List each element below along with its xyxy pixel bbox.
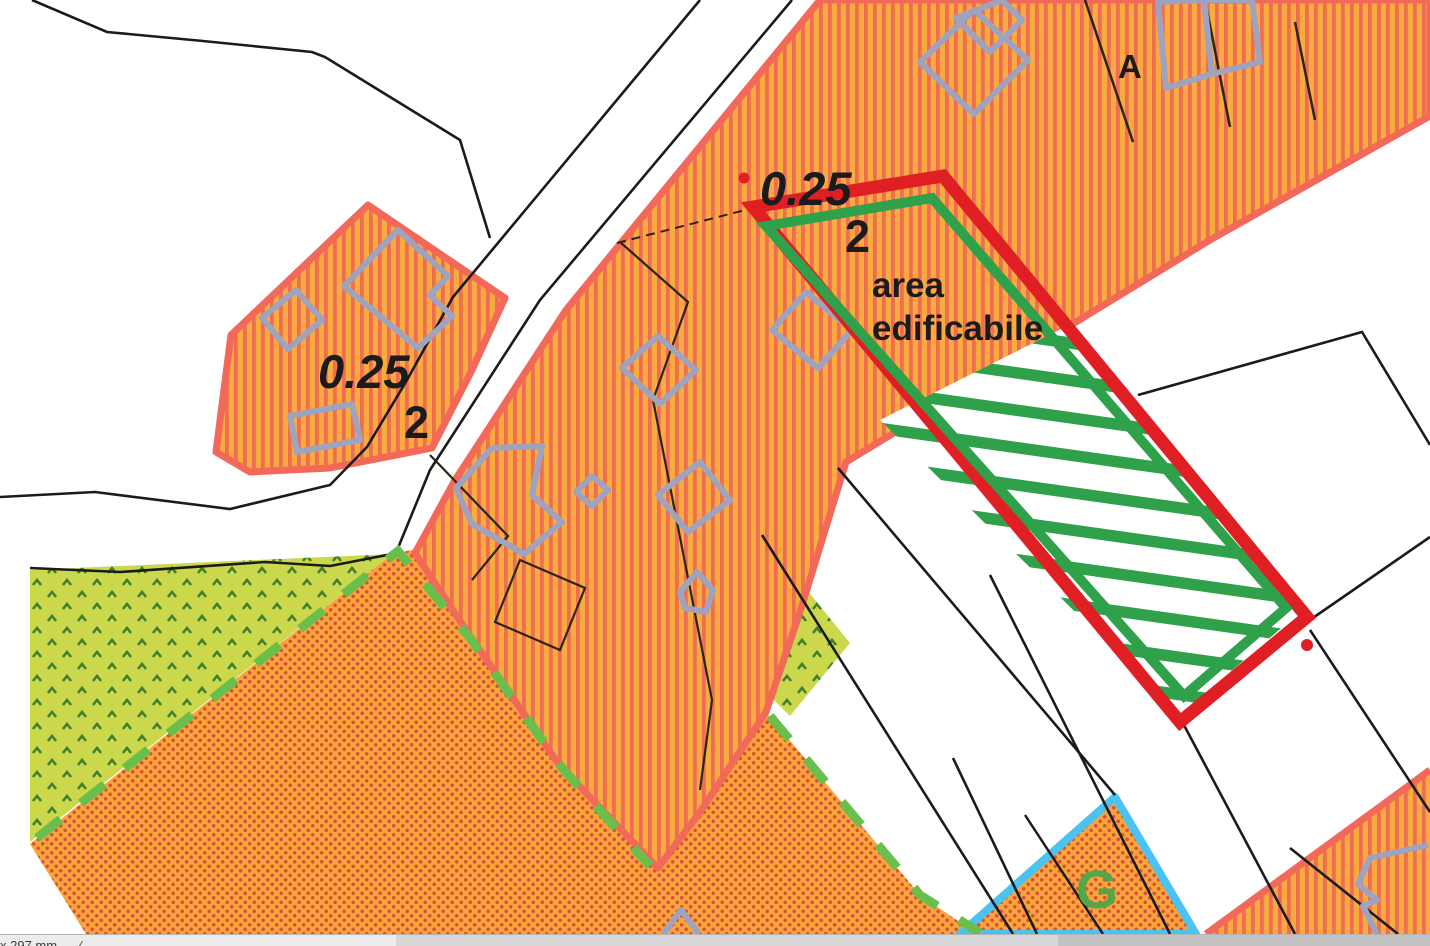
zone-index-parcel: 0.25: [760, 162, 852, 215]
building-letter-a: A: [1118, 48, 1142, 85]
page-size-text: x 297 mm: [0, 938, 57, 946]
zoning-map-canvas: 0.25 2 0.25 2 area edificabile A G: [0, 0, 1430, 934]
buildable-area-label-line2: edificabile: [872, 309, 1043, 348]
marker-dot-red: [1301, 639, 1313, 651]
buildable-area-label-line1: area: [872, 266, 945, 305]
zone-index-left: 0.25: [318, 345, 410, 398]
separator-glyph: ∕: [79, 938, 81, 946]
marker-dot-red: [739, 173, 750, 184]
status-bar: x 297 mm∕: [0, 934, 1430, 946]
zone-subindex-left: 2: [404, 397, 429, 448]
horizontal-scrollbar-thumb[interactable]: [1058, 935, 1430, 946]
zone-subindex-parcel: 2: [845, 211, 870, 262]
map-viewer: 0.25 2 0.25 2 area edificabile A G x 297…: [0, 0, 1430, 946]
zone-letter-g: G: [1076, 860, 1118, 920]
page-size-readout: x 297 mm∕: [0, 935, 396, 946]
